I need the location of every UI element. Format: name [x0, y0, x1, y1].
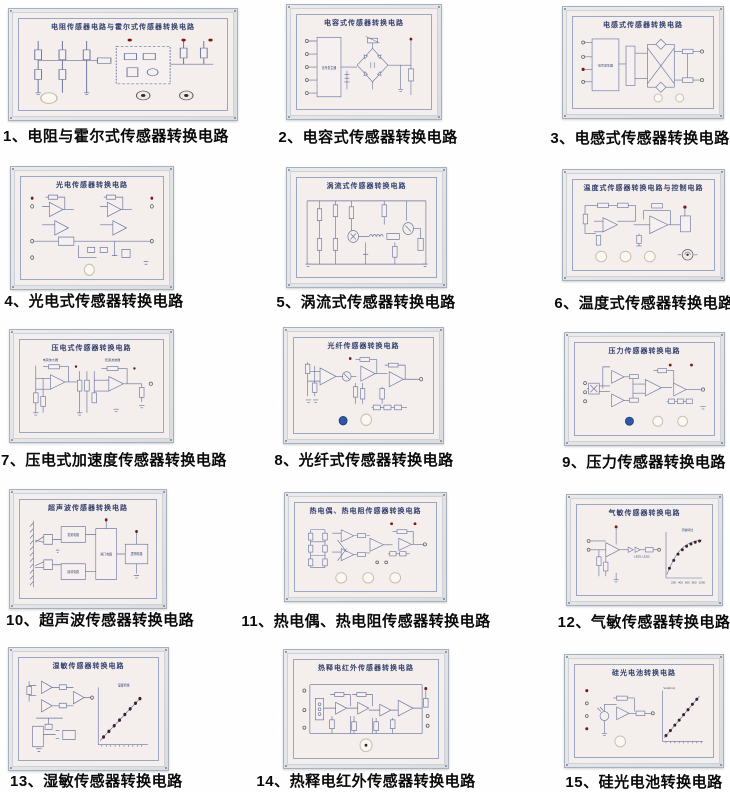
panel-face: 超声波传感器转换电路 发射电路 接收电路 闸门电路 逻辑电路 — [13, 493, 163, 605]
panel-face: 压力传感器转换电路 — [568, 336, 721, 442]
caption-8: 8、光纤式传感器转换电路 — [274, 449, 453, 470]
panel-temperature: 温度式传感器转换电路与控制电路 — [562, 169, 725, 281]
board-title: 涡流式传感器转换电路 — [297, 181, 436, 191]
panel-face: 温度式传感器转换电路与控制电路 — [566, 173, 721, 277]
circuit-schematic — [300, 191, 433, 275]
circuit-schematic: Vout(mv) — [578, 678, 710, 755]
knob[interactable] — [620, 251, 631, 262]
panel-humidity: 湿敏传感器转换电路 湿度特性 — [8, 647, 169, 771]
board-title: 电感式传感器转换电路 — [573, 20, 713, 30]
circuit-schematic: 发射电路 接收电路 闸门电路 逻辑电路 — [23, 513, 153, 596]
knob[interactable] — [596, 251, 607, 262]
caption-7: 7、压电式加速度传感器转换电路 — [1, 449, 227, 470]
knob[interactable] — [363, 573, 374, 583]
svg-text:信号发生器: 信号发生器 — [322, 65, 336, 70]
svg-text:1000: 1000 — [699, 580, 706, 584]
circuit-schematic: LED1 LED2 灵敏特性 200 400 600 800 1000 — [580, 518, 709, 593]
svg-text:400: 400 — [678, 580, 683, 584]
board-title: 超声波传感器转换电路 — [20, 503, 156, 513]
svg-text:600: 600 — [685, 580, 690, 584]
panel-piezoelectric: 压电式传感器转换电路 电荷放大器 低通滤波器 — [9, 329, 174, 443]
blue-knob[interactable] — [339, 416, 347, 424]
knob[interactable] — [84, 264, 94, 275]
caption-1: 1、电阻与霍尔式传感器转换电路 — [3, 125, 229, 146]
svg-text:电荷放大器: 电荷放大器 — [43, 357, 58, 362]
knob[interactable] — [41, 93, 57, 104]
board-title: 湿敏传感器转换电路 — [19, 661, 158, 671]
board-title: 光纤传感器转换电路 — [294, 341, 433, 351]
svg-text:湿度特性: 湿度特性 — [118, 682, 131, 687]
board-title: 热电偶、热电阻传感器转换电路 — [295, 506, 436, 516]
circuit-schematic — [578, 356, 711, 433]
knob[interactable] — [653, 416, 663, 426]
board-title: 温度式传感器转换电路与控制电路 — [573, 183, 714, 193]
panel-face: 电容式传感器转换电路 信号发生器 — [290, 8, 438, 116]
panel-face: 热电偶、热电阻传感器转换电路 — [288, 496, 443, 598]
panel-photoelectric: 光电传感器转换电路 — [10, 166, 174, 290]
panel-capacitive: 电容式传感器转换电路 信号发生器 — [286, 4, 442, 120]
svg-text:接收电路: 接收电路 — [67, 569, 80, 574]
svg-text:200: 200 — [671, 580, 676, 584]
catalog-grid: 电阻传感器电路与霍尔式传感器转换电路 — [0, 0, 730, 788]
caption-11: 11、热电偶、热电阻传感器转换电路 — [241, 610, 490, 631]
knob[interactable] — [361, 414, 372, 425]
panel-gas-sensor: 气敏传感器转换电路 LED1 LED2 灵敏特性 — [566, 494, 723, 606]
panel-pressure: 压力传感器转换电路 — [564, 332, 725, 446]
circuit-schematic: 信号发生器 — [576, 30, 710, 106]
panel-face: 湿敏传感器转换电路 湿度特性 — [12, 651, 165, 767]
svg-text:灵敏特性: 灵敏特性 — [681, 527, 693, 532]
knob[interactable] — [678, 416, 688, 426]
panel-thermocouple: 热电偶、热电阻传感器转换电路 — [284, 492, 447, 602]
knob[interactable] — [390, 573, 401, 583]
svg-text:LED1 LED2: LED1 LED2 — [634, 555, 650, 559]
circuit-schematic: 电荷放大器 低通滤波器 — [23, 353, 160, 430]
panel-face: 热释电红外传感器转换电路 — [287, 653, 445, 765]
knob[interactable] — [644, 251, 655, 262]
panel-optical-fiber: 光纤传感器转换电路 — [283, 327, 444, 444]
panel-face: 电感式传感器转换电路 信号发生器 — [566, 10, 720, 115]
circuit-schematic — [576, 193, 711, 268]
knob[interactable] — [336, 573, 347, 583]
board-title: 热释电红外传感器转换电路 — [294, 663, 438, 673]
panel-silicon-photocell: 硅光电池转换电路 Vout(mv) — [564, 654, 724, 768]
svg-text:800: 800 — [692, 580, 697, 584]
caption-12: 12、气敏传感器转换电路 — [558, 611, 730, 632]
caption-9: 9、压力传感器转换电路 — [562, 451, 726, 472]
svg-text:低通滤波器: 低通滤波器 — [105, 357, 120, 362]
circuit-schematic — [297, 673, 435, 756]
knob[interactable] — [615, 736, 626, 747]
panel-face: 压电式传感器转换电路 电荷放大器 低通滤波器 — [13, 333, 170, 439]
caption-5: 5、涡流式传感器转换电路 — [276, 291, 455, 312]
circuit-schematic — [297, 351, 430, 431]
circuit-schematic — [22, 32, 224, 108]
circuit-schematic — [298, 516, 433, 589]
board-title: 压电式传感器转换电路 — [20, 343, 163, 353]
panel-face: 光电传感器转换电路 — [14, 170, 170, 286]
knob[interactable] — [654, 94, 662, 102]
board-title: 光电传感器转换电路 — [21, 180, 163, 190]
panel-face: 电阻传感器电路与霍尔式传感器转换电路 — [12, 12, 234, 117]
caption-2: 2、电容式传感器转换电路 — [278, 126, 457, 147]
panel-ultrasonic: 超声波传感器转换电路 发射电路 接收电路 闸门电路 逻辑电路 — [9, 489, 167, 609]
circuit-schematic — [24, 190, 160, 277]
caption-15: 15、硅光电池转换电路 — [565, 771, 722, 792]
panel-resistance-hall: 电阻传感器电路与霍尔式传感器转换电路 — [8, 8, 238, 121]
circuit-schematic: 信号发生器 — [300, 28, 428, 107]
caption-6: 6、温度式传感器转换电路 — [554, 292, 730, 313]
circuit-schematic: 湿度特性 — [22, 671, 155, 758]
svg-text:信号发生器: 信号发生器 — [598, 63, 613, 68]
svg-text:Vout(mv): Vout(mv) — [663, 686, 675, 690]
board-title: 电容式传感器转换电路 — [297, 18, 431, 28]
panel-pyroelectric-ir: 热释电红外传感器转换电路 — [283, 649, 449, 769]
caption-10: 10、超声波传感器转换电路 — [6, 609, 194, 630]
board-title: 硅光电池转换电路 — [575, 668, 713, 678]
panel-eddy-current: 涡流式传感器转换电路 — [286, 167, 447, 288]
board-title: 电阻传感器电路与霍尔式传感器转换电路 — [19, 22, 227, 32]
caption-3: 3、电感式传感器转换电路 — [550, 127, 729, 148]
panel-face: 气敏传感器转换电路 LED1 LED2 灵敏特性 — [570, 498, 719, 602]
panel-face: 涡流式传感器转换电路 — [290, 171, 443, 284]
panel-face: 光纤传感器转换电路 — [287, 331, 440, 440]
panel-face: 硅光电池转换电路 Vout(mv) — [568, 658, 720, 764]
caption-4: 4、光电式传感器转换电路 — [4, 290, 183, 311]
blue-knob[interactable] — [625, 417, 633, 425]
panel-inductive: 电感式传感器转换电路 信号发生器 — [562, 6, 724, 119]
knob[interactable] — [676, 94, 684, 102]
board-title: 气敏传感器转换电路 — [577, 508, 712, 518]
svg-text:逻辑电路: 逻辑电路 — [131, 551, 144, 556]
svg-text:闸门电路: 闸门电路 — [100, 551, 113, 556]
board-title: 压力传感器转换电路 — [575, 346, 714, 356]
svg-text:发射电路: 发射电路 — [67, 532, 80, 537]
